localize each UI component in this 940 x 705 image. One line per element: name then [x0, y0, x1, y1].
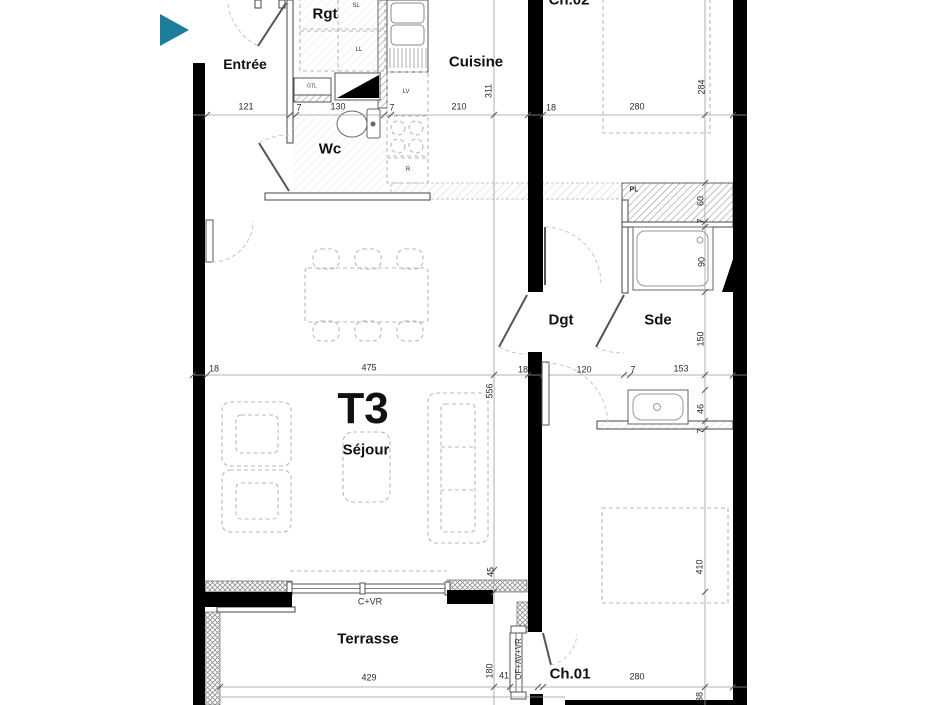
floorplan-linework: [0, 0, 940, 705]
room-label-terrasse: Terrasse: [337, 632, 398, 647]
room-label-wc: Wc: [319, 142, 342, 157]
dim-sde-width: 153: [673, 365, 688, 374]
dim-wall-18a: 18: [546, 104, 556, 113]
dryer-label: SL: [352, 3, 359, 9]
washer-label: LL: [356, 47, 363, 53]
gtl-label: GTL: [307, 85, 317, 90]
dim-41: 41: [499, 672, 509, 681]
structural-walls: [193, 0, 747, 705]
dim-wall-7b: 7: [389, 104, 394, 113]
floorplan-viewport: Entrée Rgt Cuisine Wc Ch.02 Dgt Sde T3 S…: [0, 0, 940, 705]
dishwasher-label: LV: [403, 89, 410, 95]
dim-terrasse-depth: 180: [486, 663, 495, 678]
dim-cuisine-width: 210: [451, 103, 466, 112]
ch01-window-label: OF+AV+VR: [515, 638, 523, 680]
dim-shower-depth: 90: [698, 257, 707, 267]
room-label-rgt: Rgt: [313, 7, 338, 22]
fridge-label: R: [406, 167, 410, 173]
dim-wall-7e: 7: [697, 428, 706, 433]
play-marker-icon[interactable]: [160, 14, 189, 46]
closet-label: PL: [630, 187, 639, 194]
dim-wall-7c: 7: [630, 366, 635, 375]
room-label-sde: Sde: [644, 313, 672, 328]
dim-150: 150: [697, 331, 706, 346]
dim-wall-7d: 7: [697, 218, 706, 223]
dim-entree-width: 121: [238, 103, 253, 112]
living-window-label: C+VR: [358, 598, 382, 607]
dim-ch01-width: 280: [629, 673, 644, 682]
dim-wall-18c: 18: [518, 366, 528, 375]
room-label-entree: Entrée: [223, 57, 267, 71]
room-label-dgt: Dgt: [549, 313, 574, 328]
dim-pl-depth: 60: [697, 196, 706, 206]
room-label-ch02: Ch.02: [549, 0, 590, 8]
room-label-sejour: Séjour: [343, 443, 390, 458]
dim-dgt-width: 120: [576, 366, 591, 375]
dim-terrasse-width: 429: [361, 674, 376, 683]
dim-wc-width: 130: [330, 103, 345, 112]
dim-45: 45: [487, 567, 496, 577]
dim-ch01-depth: 410: [696, 559, 705, 574]
dim-sejour-width: 475: [361, 364, 376, 373]
room-label-cuisine: Cuisine: [449, 55, 503, 70]
dim-38: 38: [696, 692, 705, 702]
dim-ch02-depth: 284: [698, 79, 707, 94]
dim-wall-18b: 18: [209, 365, 219, 374]
dim-ch02-width: 280: [629, 103, 644, 112]
room-label-ch01: Ch.01: [550, 667, 591, 682]
dim-wall-7a: 7: [296, 104, 301, 113]
unit-type-label: T3: [337, 387, 388, 431]
doors: [206, 3, 624, 665]
dim-sejour-depth: 556: [486, 383, 495, 398]
dim-cuisine-depth: 311: [485, 84, 494, 98]
dim-vanity-depth: 46: [697, 404, 706, 414]
